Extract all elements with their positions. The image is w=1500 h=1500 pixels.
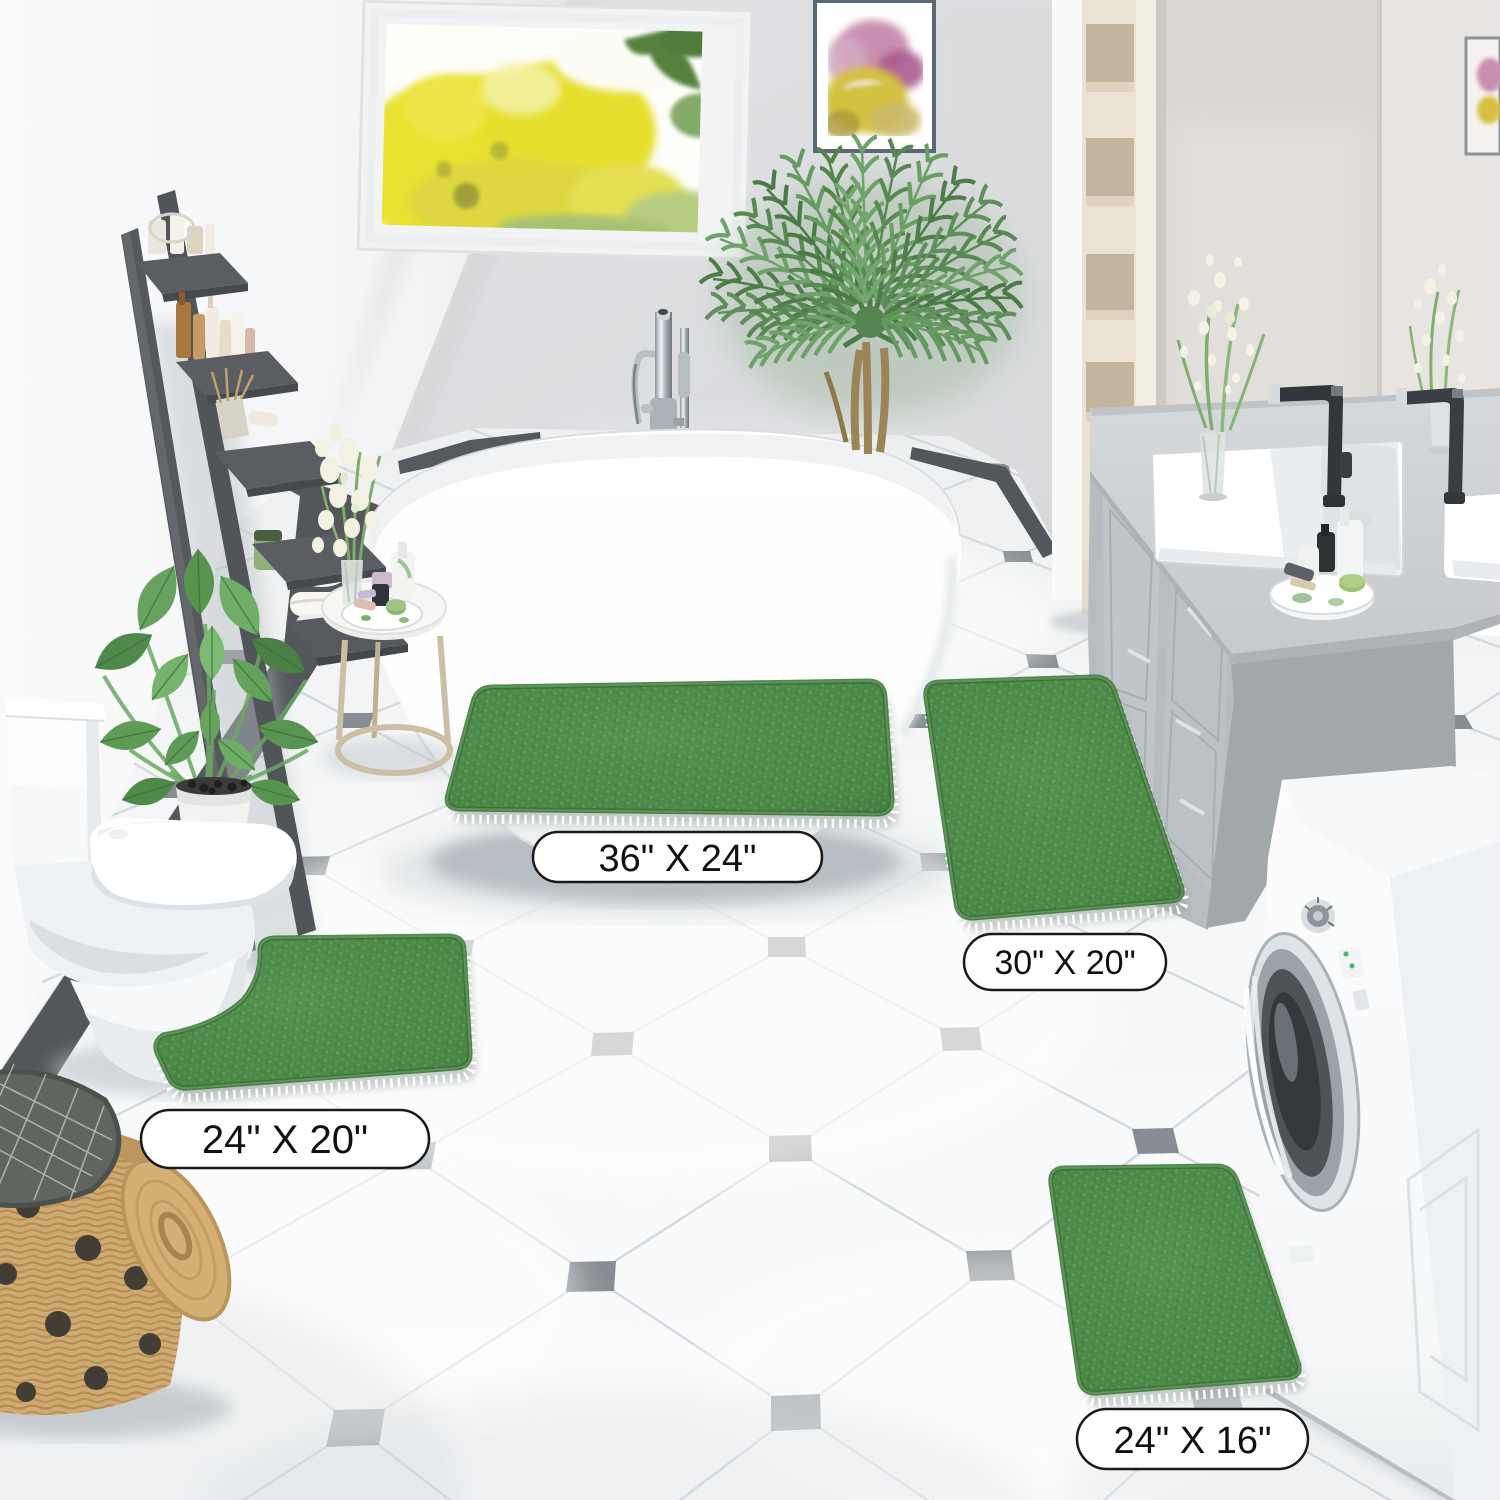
svg-text:24" X 20": 24" X 20"	[202, 1118, 368, 1162]
svg-text:36" X 24": 36" X 24"	[599, 838, 757, 880]
svg-text:24" X 16": 24" X 16"	[1114, 1420, 1272, 1462]
svg-text:30" X 20": 30" X 20"	[994, 944, 1135, 982]
